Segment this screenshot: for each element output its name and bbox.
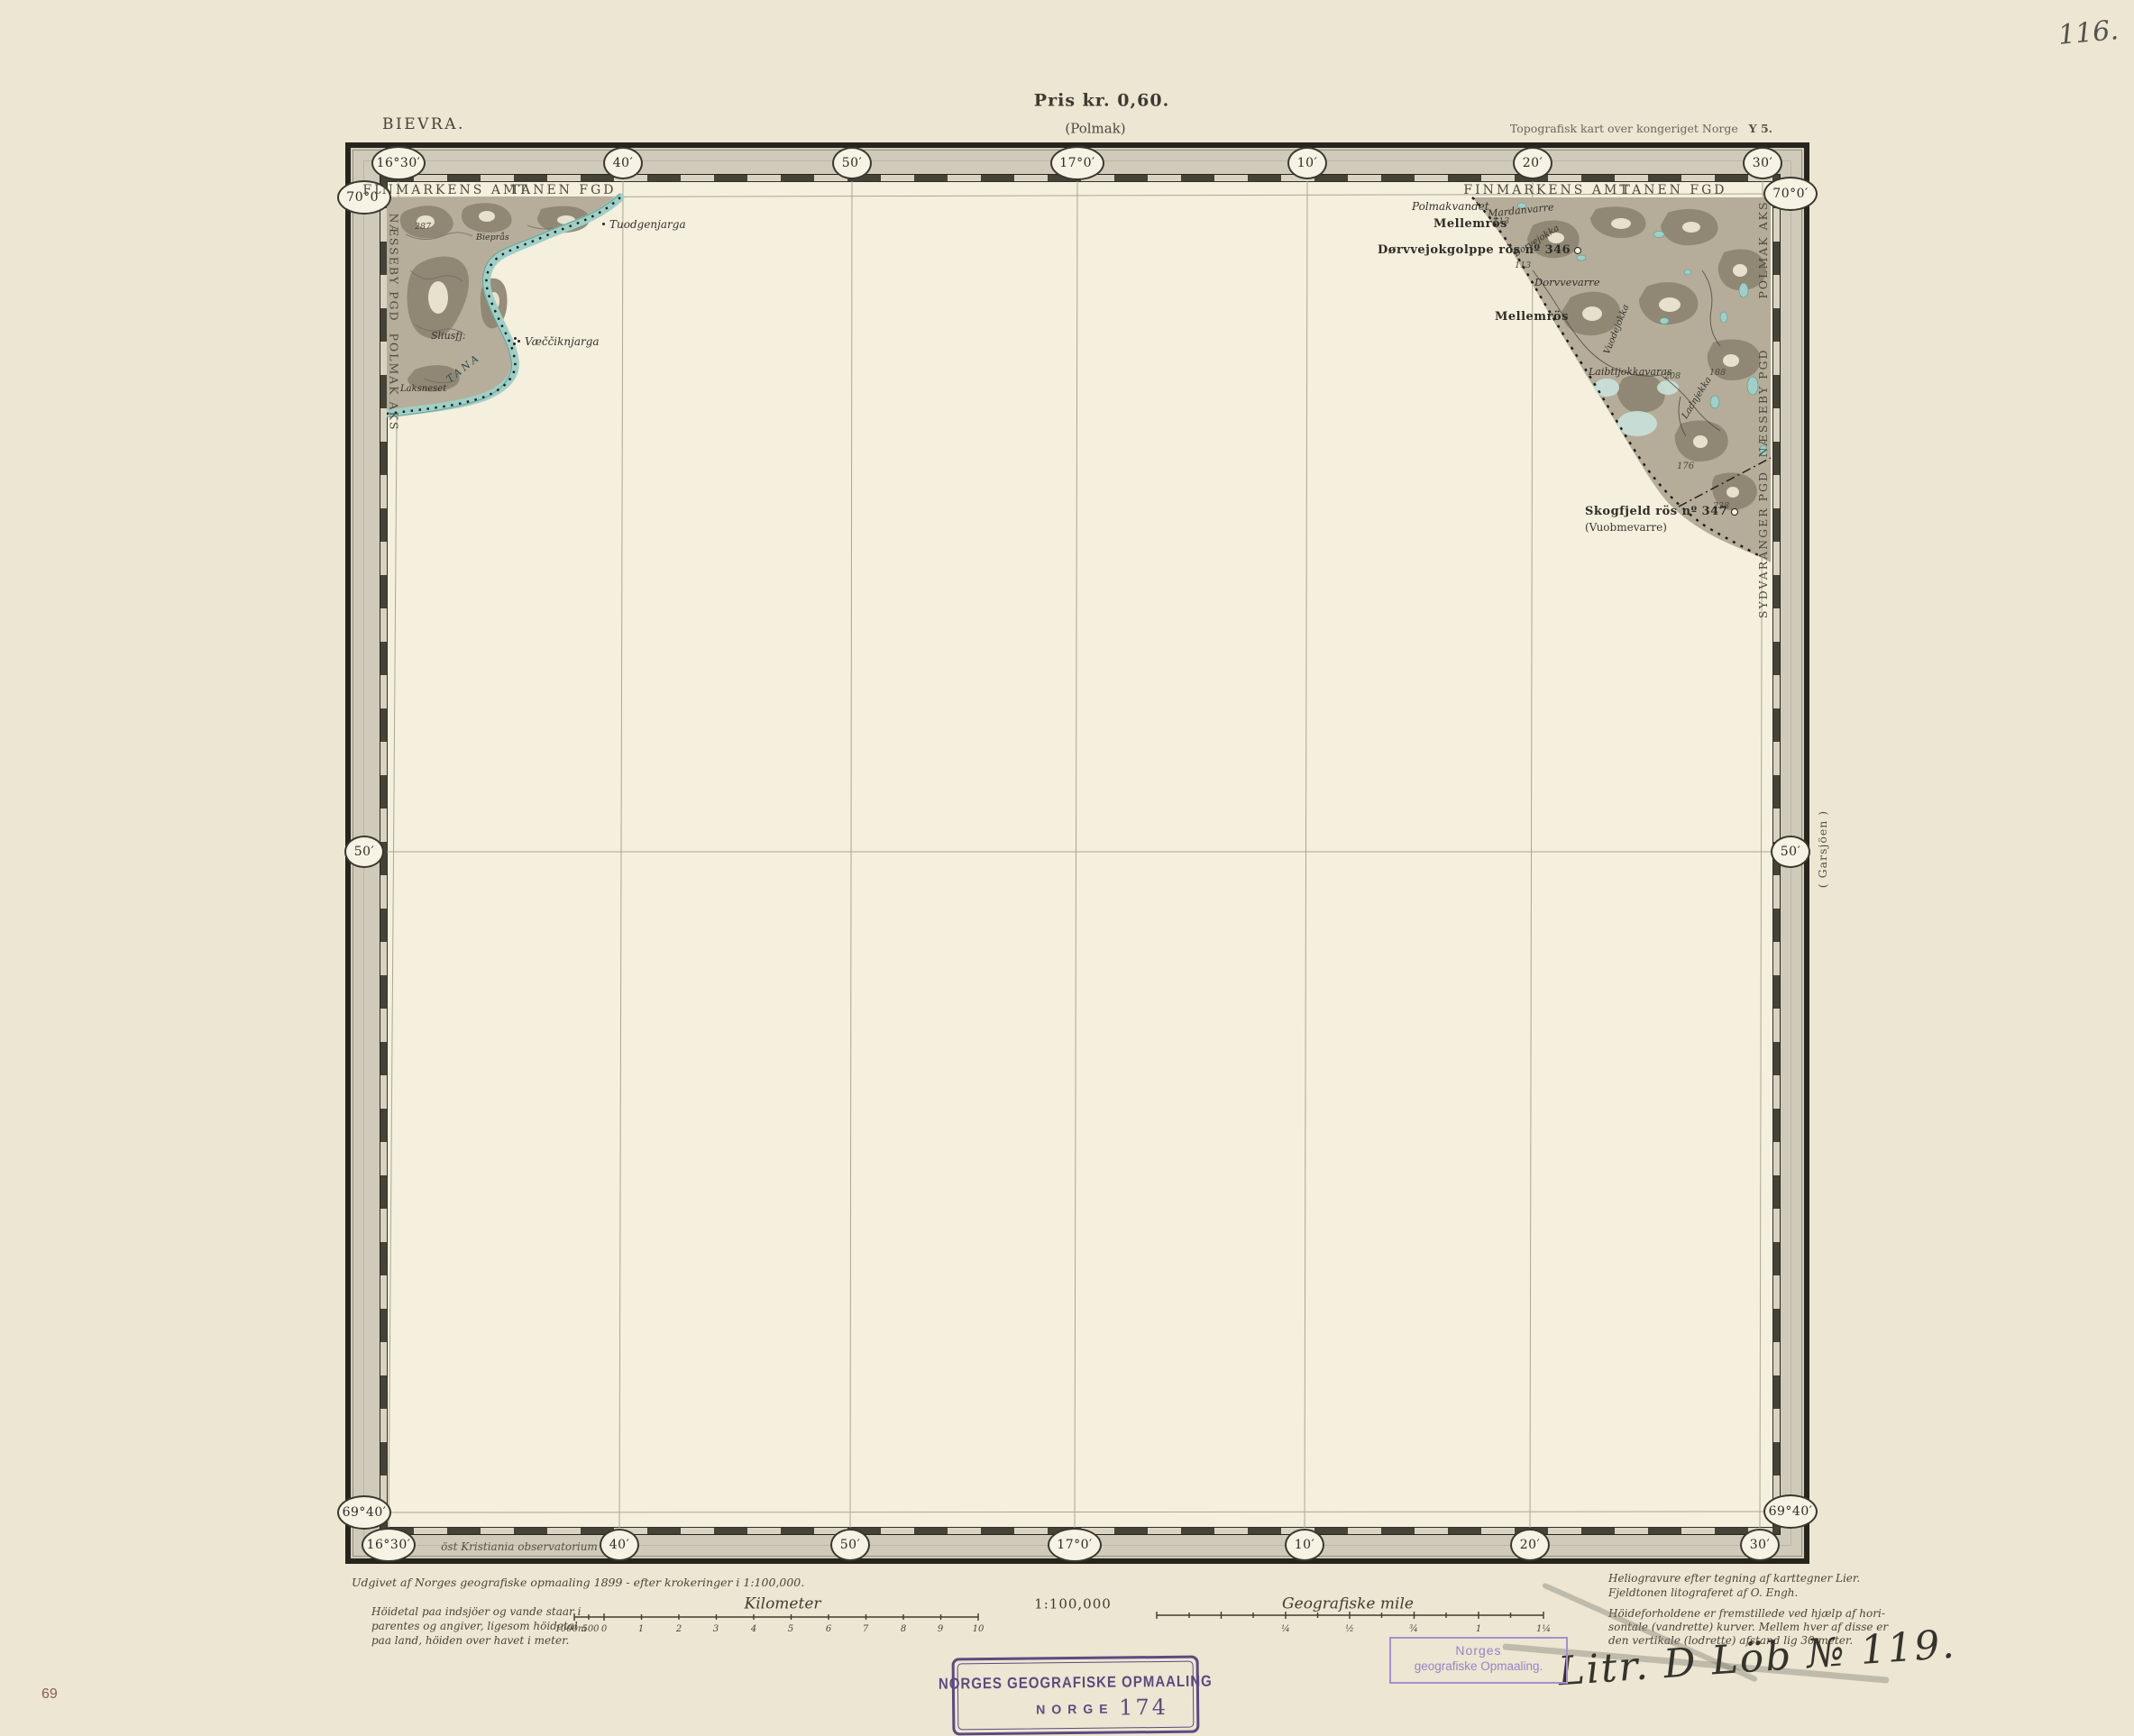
handwritten-collection-number: 116. — [2057, 17, 2120, 50]
cairn-label: Mellemrös — [1495, 310, 1569, 324]
graticule-value: 20′ — [1523, 156, 1543, 170]
credit-line-1: Fjeldtonen litograferet af O. Engh. — [1608, 1587, 1798, 1598]
graticule-value: 17°0′ — [1059, 156, 1094, 170]
km-tick: 6 — [826, 1624, 831, 1634]
sheet-subtitle: (Polmak) — [1065, 123, 1125, 136]
cairn-label-text: Dørvvejokgolppe rös nº 346 — [1378, 243, 1571, 257]
place-label: Laksneset — [400, 384, 446, 394]
sheet-title: BIEVRA. — [382, 117, 465, 132]
admin-left-edge-0: NÆSSEBY PGD — [388, 213, 399, 322]
elevation-label: 176 — [1677, 461, 1694, 471]
cairn-ring-icon — [1731, 508, 1738, 516]
height-note-line-1: parentes og angiver, ligesom höidetal — [371, 1621, 578, 1631]
publisher-line: Udgivet af Norges geografiske opmaaling … — [352, 1577, 804, 1589]
graticule-oval-right-0: 70°0′ — [1763, 177, 1818, 211]
km-scale-bar — [568, 1612, 992, 1624]
graticule-oval-bottom-1: 40′ — [600, 1529, 639, 1561]
adjacent-sheet-note: ( Garsjöen ) — [1818, 810, 1829, 888]
graticule-value: 10′ — [1297, 156, 1318, 170]
graticule-value: 50′ — [842, 156, 863, 170]
graticule-oval-top-6: 30′ — [1743, 147, 1782, 179]
km-tick: 5 — [788, 1624, 793, 1634]
admin-right-edge-2: SYDVARANGER PGD — [1758, 471, 1770, 618]
elevation-label: 113 — [1515, 260, 1531, 270]
graticule-oval-right-2: 69°40′ — [1763, 1494, 1818, 1529]
graticule-value: 40′ — [609, 1538, 630, 1552]
admin-ne-fgd: TANEN FGD — [1622, 183, 1727, 197]
mile-tick: ¼ — [1281, 1624, 1290, 1634]
km-tick: 4 — [751, 1624, 756, 1634]
cairn-label: Skogfjeld rös nº 347 — [1585, 505, 1738, 518]
admin-right-edge-0: POLMAK AKS — [1758, 200, 1770, 298]
graticule-oval-top-2: 50′ — [832, 147, 872, 179]
stamp-small-line2: geografiske Opmaaling. — [1391, 1659, 1566, 1673]
stamp-norges-geografiske-opmaaling: NORGES GEOGRAFISKE OPMAALING NORGE 174 — [952, 1656, 1200, 1736]
km-tick: 9 — [938, 1624, 943, 1634]
contour-note-line-0: Höideforholdene er fremstillede ved hjæl… — [1608, 1608, 1885, 1619]
km-tick: 7 — [863, 1624, 868, 1634]
place-label: Bieprås — [476, 233, 509, 242]
admin-left-edge-1: POLMAK AKS — [388, 333, 399, 431]
meridian-origin-note: öst Kristiania observatorium — [441, 1541, 598, 1552]
place-label: Laibtijokkavaras — [1589, 366, 1672, 378]
place-label: Tuodgenjarga — [609, 218, 686, 231]
graticule-oval-right-1: 50′ — [1771, 836, 1810, 868]
scale-ratio: 1:100,000 — [1034, 1598, 1112, 1612]
place-label: Dorvvevarre — [1534, 276, 1600, 288]
graticule-oval-top-4: 10′ — [1287, 147, 1327, 179]
credit-line-0: Heliogravure efter tegning af karttegner… — [1608, 1573, 1860, 1584]
graticule-oval-bottom-3: 17°0′ — [1048, 1528, 1102, 1562]
series-title: Topografisk kart over kongeriget Norge Y… — [1510, 123, 1772, 135]
height-note-line-0: Höidetal paa indsjöer og vande staar i — [371, 1606, 581, 1617]
stamp-line1: NORGES GEOGRAFISKE OPMAALING — [939, 1673, 1213, 1691]
km-tick: 500 — [582, 1624, 599, 1634]
mile-scale-bar — [1154, 1610, 1549, 1622]
graticule-value: 30′ — [1750, 1538, 1771, 1552]
price-label: Pris kr. 0,60. — [1034, 93, 1169, 110]
admin-ne-amt: FINMARKENS AMT — [1463, 183, 1630, 197]
place-alt-label: (Vuobmevarre) — [1585, 521, 1667, 534]
place-label: Væččiknjarga — [525, 335, 600, 348]
graticule-value: 50′ — [840, 1538, 861, 1552]
series-title-text: Topografisk kart over kongeriget Norge — [1510, 122, 1738, 135]
graticule-value: 17°0′ — [1057, 1538, 1092, 1552]
cairn-label: Dørvvejokgolppe rös nº 346 — [1378, 243, 1581, 257]
mile-tick: 1¼ — [1536, 1624, 1551, 1634]
graticule-value: 69°40′ — [1769, 1504, 1813, 1519]
stamp-small-line1: Norges — [1391, 1643, 1566, 1658]
stamp-line2: NORGE — [1036, 1703, 1113, 1716]
mile-tick: 1 — [1476, 1624, 1481, 1634]
km-tick: 10 — [973, 1624, 985, 1634]
mile-tick: ½ — [1345, 1624, 1354, 1634]
graticule-value: 70°0′ — [1772, 187, 1808, 201]
graticule-oval-top-0: 16°30′ — [371, 146, 426, 180]
cairn-ring-icon — [1574, 247, 1581, 254]
elevation-label: 188 — [1709, 368, 1726, 378]
graticule-value: 69°40′ — [343, 1505, 387, 1520]
admin-nw-fgd: TANEN FGD — [511, 183, 617, 197]
km-tick: 3 — [713, 1624, 719, 1634]
elevation-label: 113 — [1493, 216, 1509, 226]
terrain-northwest — [387, 181, 739, 433]
admin-nw-amt: FINMARKENS AMT — [362, 183, 529, 197]
graticule-oval-bottom-0: 16°30′ — [362, 1528, 416, 1562]
graticule-oval-top-5: 20′ — [1513, 147, 1552, 179]
km-scale-title: Kilometer — [744, 1597, 820, 1613]
stamp-norges-geografiske-opmaaling-small: Norges geografiske Opmaaling. — [1389, 1637, 1568, 1684]
page-number: 69 — [41, 1687, 58, 1702]
graticule-value: 50′ — [354, 845, 375, 859]
settlement-dot — [514, 337, 517, 340]
graticule-oval-left-1: 50′ — [344, 836, 384, 868]
graticule-oval-bottom-5: 20′ — [1510, 1529, 1550, 1561]
km-tick: 2 — [676, 1624, 682, 1634]
admin-right-edge-1: NÆSSEBY PGD — [1758, 348, 1770, 457]
graticule-oval-bottom-6: 30′ — [1740, 1529, 1780, 1561]
sheet-code: Y 5. — [1749, 122, 1772, 135]
height-note-line-2: paa land, höiden over havet i meter. — [371, 1635, 569, 1646]
graticule-value: 50′ — [1781, 845, 1801, 859]
graticule-value: 30′ — [1753, 156, 1773, 170]
stamp-number: 174 — [1119, 1696, 1168, 1719]
place-label: Sliusfj. — [431, 330, 465, 342]
place-label: Polmakvandet — [1412, 200, 1489, 213]
graticule-value: 16°30′ — [377, 156, 421, 170]
graticule-value: 40′ — [613, 156, 634, 170]
graticule-oval-left-2: 69°40′ — [337, 1495, 391, 1530]
graticule-oval-bottom-4: 10′ — [1285, 1529, 1324, 1561]
km-tick: 8 — [901, 1624, 906, 1634]
settlement-dot — [602, 223, 605, 225]
graticule-value: 16°30′ — [367, 1538, 411, 1552]
mile-tick: ¾ — [1409, 1624, 1418, 1634]
cairn-label-text: Skogfjeld rös nº 347 — [1585, 505, 1727, 518]
map-sheet: 116. Pris kr. 0,60. BIEVRA. (Polmak) Top… — [0, 0, 2134, 1736]
km-tick: 0 — [601, 1624, 607, 1634]
elevation-label: 287 — [415, 222, 431, 232]
graticule-value: 10′ — [1295, 1538, 1315, 1552]
graticule-value: 20′ — [1520, 1538, 1541, 1552]
graticule-oval-top-3: 17°0′ — [1050, 146, 1104, 180]
graticule-oval-bottom-2: 50′ — [830, 1529, 870, 1561]
graticule-oval-top-1: 40′ — [603, 147, 643, 179]
km-tick: 1 — [638, 1624, 644, 1634]
elevation-label: 208 — [1664, 371, 1681, 381]
